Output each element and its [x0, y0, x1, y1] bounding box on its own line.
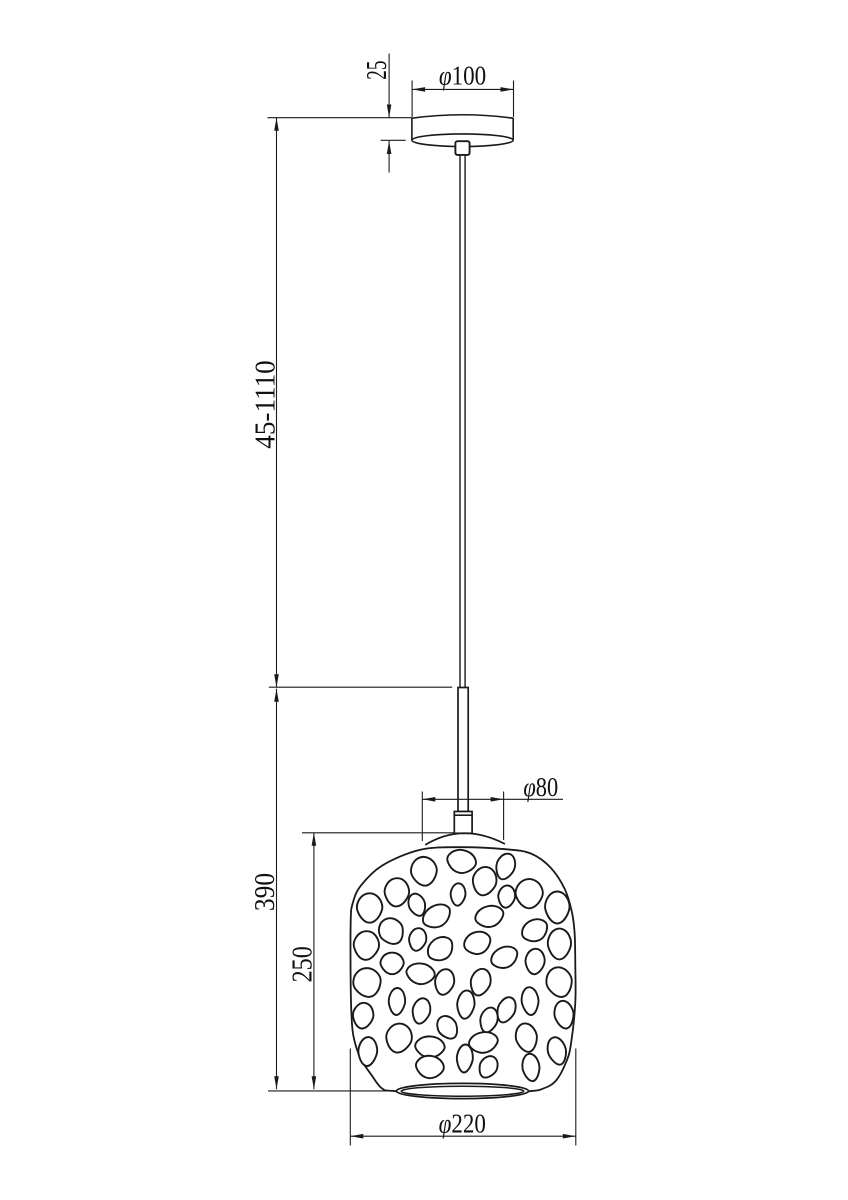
svg-text:φ220: φ220 — [439, 1109, 486, 1139]
svg-text:45-1110: 45-1110 — [250, 360, 282, 449]
svg-text:φ100: φ100 — [439, 61, 486, 91]
svg-text:φ80: φ80 — [523, 772, 558, 802]
svg-text:25: 25 — [361, 61, 393, 80]
svg-text:250: 250 — [287, 946, 319, 982]
svg-text:390: 390 — [249, 873, 281, 911]
